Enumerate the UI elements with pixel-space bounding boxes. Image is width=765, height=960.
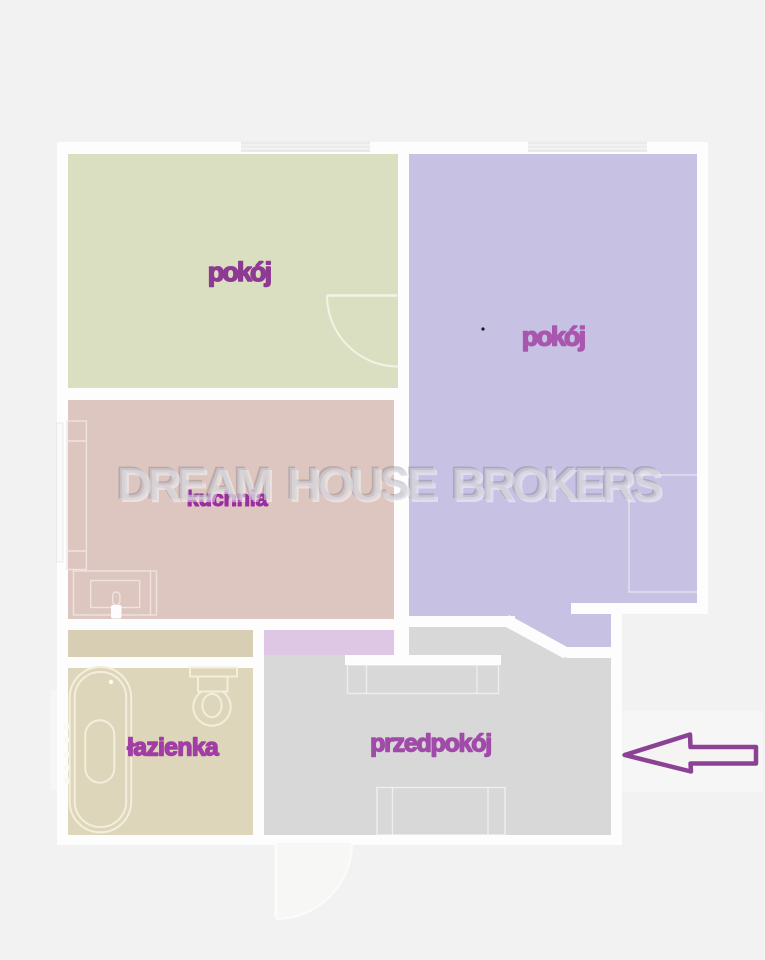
svg-text:przedpokój: przedpokój xyxy=(370,730,491,758)
svg-text:pokój: pokój xyxy=(208,257,271,287)
svg-text:DREAM HOUSE BROKERS: DREAM HOUSE BROKERS xyxy=(117,458,661,510)
svg-text:łazienka: łazienka xyxy=(127,734,220,762)
svg-text:pokój: pokój xyxy=(522,322,585,352)
